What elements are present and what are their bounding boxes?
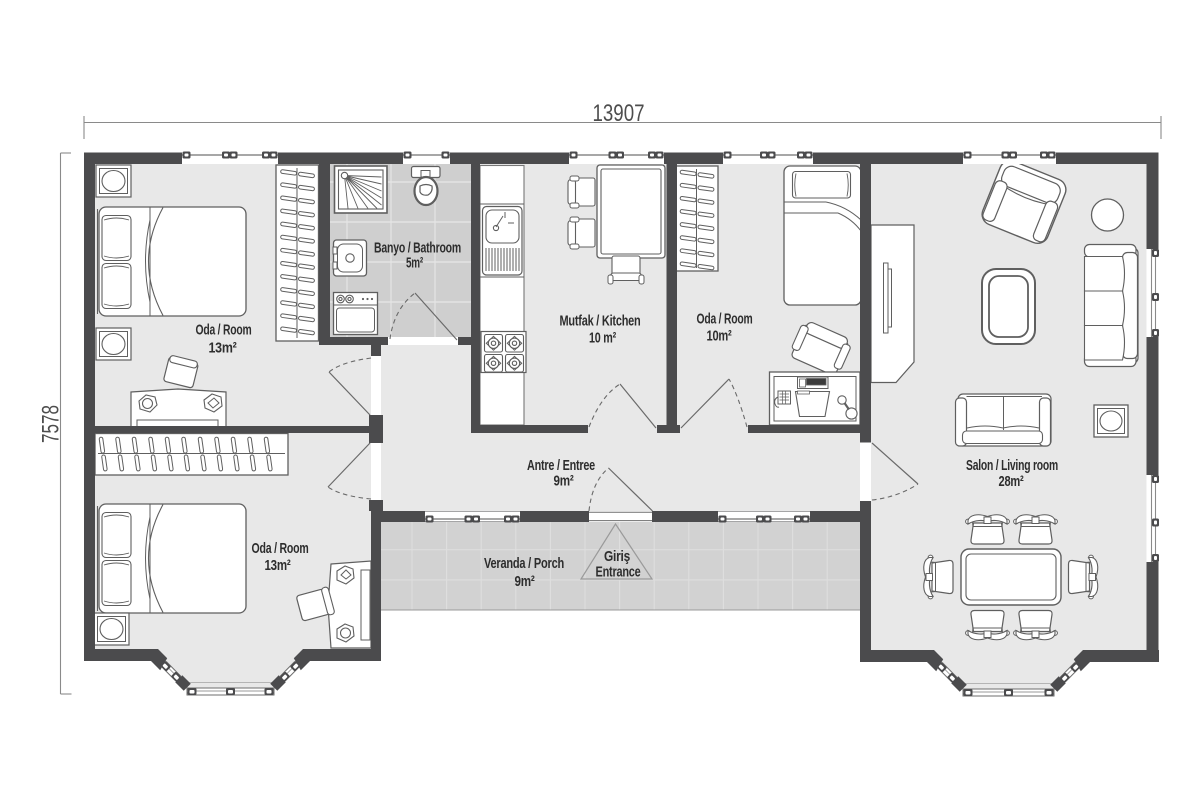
svg-text:5m²: 5m²	[406, 255, 423, 272]
svg-text:13907: 13907	[593, 100, 645, 127]
svg-text:28m²: 28m²	[999, 473, 1024, 490]
svg-text:10m²: 10m²	[707, 328, 732, 345]
svg-text:13m²: 13m²	[265, 557, 291, 574]
svg-text:9m²: 9m²	[515, 573, 535, 590]
svg-text:9m²: 9m²	[554, 473, 574, 490]
svg-text:10 m²: 10 m²	[589, 330, 616, 347]
svg-text:Oda / Room: Oda / Room	[697, 311, 753, 328]
svg-text:Entrance: Entrance	[596, 564, 641, 581]
svg-text:Oda / Room: Oda / Room	[196, 322, 252, 339]
svg-text:7578: 7578	[38, 405, 65, 443]
svg-text:Giriş: Giriş	[604, 548, 630, 565]
svg-text:13m²: 13m²	[209, 340, 237, 357]
svg-text:Veranda / Porch: Veranda / Porch	[484, 555, 564, 572]
svg-text:Mutfak / Kitchen: Mutfak / Kitchen	[560, 313, 641, 330]
svg-text:Salon / Living room: Salon / Living room	[966, 457, 1058, 474]
svg-text:Oda / Room: Oda / Room	[252, 540, 309, 557]
